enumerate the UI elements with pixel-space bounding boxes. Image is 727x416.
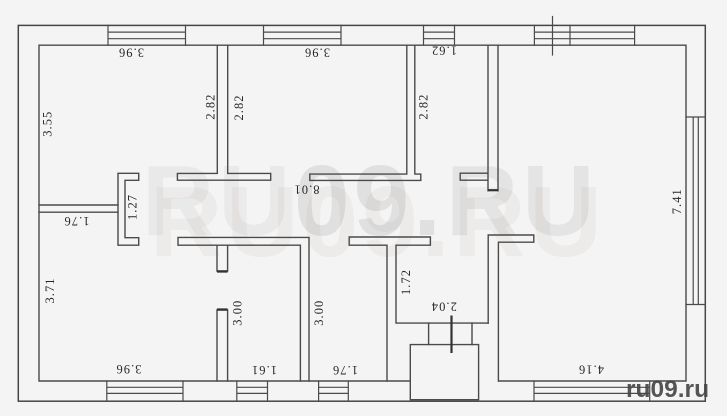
svg-text:1.61: 1.61 [251, 363, 277, 377]
svg-text:1.62: 1.62 [431, 44, 457, 58]
svg-text:09.: 09. [294, 145, 445, 257]
svg-text:3.71: 3.71 [43, 277, 57, 303]
svg-text:2.82: 2.82 [417, 94, 431, 120]
svg-text:4.16: 4.16 [578, 363, 604, 377]
svg-text:ru09.ru: ru09.ru [626, 376, 709, 403]
svg-text:3.00: 3.00 [312, 300, 326, 326]
svg-text:3.96: 3.96 [304, 46, 330, 60]
svg-text:2.82: 2.82 [204, 94, 218, 120]
svg-text:1.27: 1.27 [126, 194, 140, 220]
svg-text:1.76: 1.76 [63, 214, 89, 228]
svg-text:3.96: 3.96 [118, 46, 144, 60]
svg-text:RU: RU [142, 145, 294, 257]
svg-text:1.72: 1.72 [399, 269, 413, 295]
svg-text:3.00: 3.00 [231, 300, 245, 326]
svg-text:8.01: 8.01 [293, 183, 319, 197]
svg-text:3.96: 3.96 [115, 362, 141, 376]
svg-text:7.41: 7.41 [670, 188, 684, 214]
svg-text:2.82: 2.82 [232, 94, 246, 120]
svg-text:3.55: 3.55 [41, 111, 55, 137]
svg-text:RU: RU [446, 145, 598, 257]
svg-text:2.04: 2.04 [431, 300, 457, 314]
svg-text:1.76: 1.76 [332, 363, 358, 377]
